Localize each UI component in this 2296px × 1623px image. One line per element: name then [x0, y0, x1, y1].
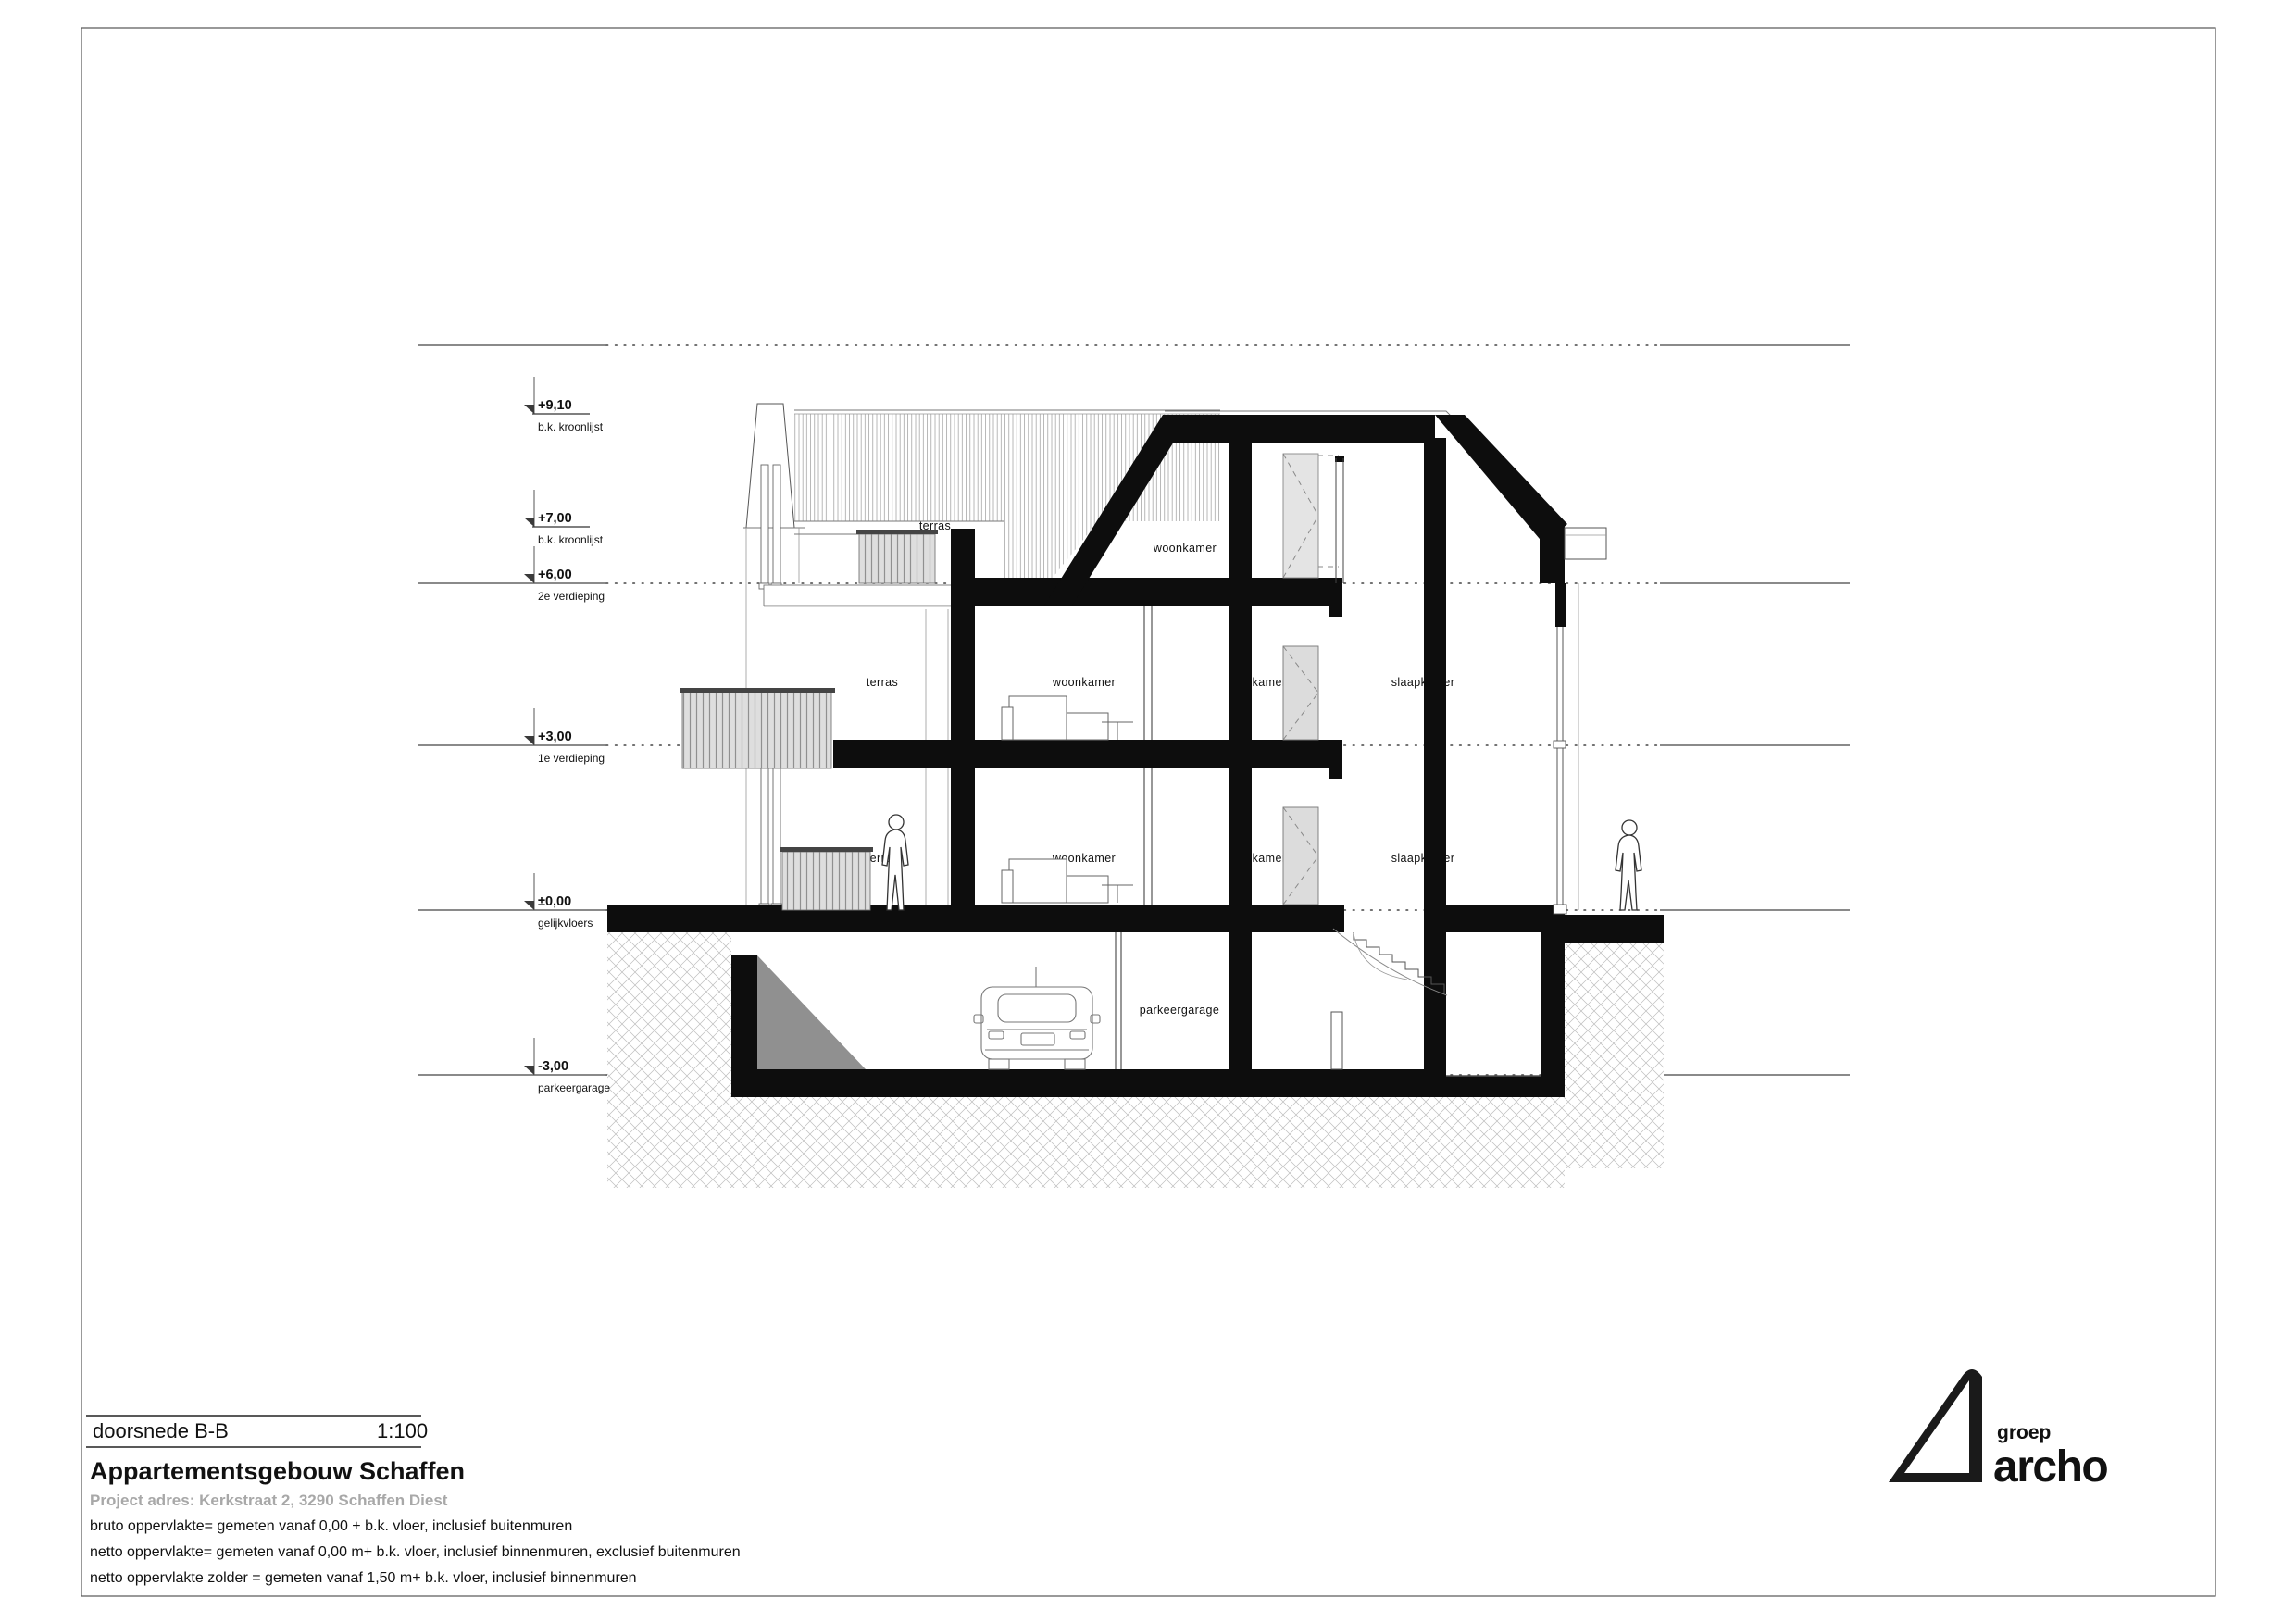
kamer-door-0: [1283, 807, 1318, 905]
roof-ridge-beam: [1163, 415, 1435, 443]
facade-transom: [1554, 741, 1566, 748]
neighbour-gable: [746, 404, 794, 528]
attic-window-glass: [1283, 454, 1318, 578]
project-address: Project adres: Kerkstraat 2, 3290 Schaff…: [90, 1492, 448, 1509]
note-netto-zolder: netto oppervlakte zolder = gemeten vanaf…: [90, 1570, 637, 1586]
drawing-sheet: terras woonkamer terras woonkamer kamer …: [0, 0, 2296, 1623]
marker-plus300: +3,00 1e verdieping: [524, 708, 605, 765]
roof-eave-pillar: [1540, 523, 1565, 583]
wall-interior-b: [1229, 438, 1252, 1069]
level-label: parkeergarage: [538, 1081, 610, 1094]
marker-plus600: +6,00 2e verdieping: [524, 546, 605, 603]
level-value: ±0,00: [538, 894, 571, 909]
floor-slab-plus6: [954, 578, 1342, 606]
level-value: -3,00: [538, 1059, 568, 1074]
balustrade-floor1-rail: [680, 688, 835, 693]
level-triangle-icon: [524, 736, 534, 745]
marker-plus910: +9,10 b.k. kroonlijst: [524, 377, 604, 433]
marker-minus300: -3,00 parkeergarage: [524, 1038, 610, 1094]
level-value: +3,00: [538, 730, 572, 744]
level-value: +9,10: [538, 398, 572, 413]
level-value: +6,00: [538, 568, 572, 582]
earth-below: [607, 1097, 1565, 1188]
drawing-name: doorsnede B-B: [93, 1419, 229, 1442]
level-label: gelijkvloers: [538, 917, 593, 930]
interior-partitions: [1116, 606, 1152, 1069]
elevation-markers: +9,10 b.k. kroonlijst +7,00 b.k. kroonli…: [524, 377, 610, 1094]
facade-sill: [1554, 905, 1566, 914]
floor-slab-plus3: [833, 740, 1342, 768]
logo-triangle-icon: [1889, 1369, 1982, 1482]
slab-edge-plus6: [1329, 606, 1342, 617]
level-triangle-icon: [524, 1066, 534, 1075]
groep-archo-logo: groep archo: [1889, 1369, 2107, 1492]
note-netto: netto oppervlakte= gemeten vanaf 0,00 m+…: [90, 1544, 741, 1560]
room-label-kamer-1: kamer: [1253, 676, 1287, 689]
room-label-terras-1: terras: [867, 676, 898, 689]
room-label-kamer-0: kamer: [1253, 852, 1287, 865]
level-label: b.k. kroonlijst: [538, 420, 604, 433]
kamer-door-1: [1283, 646, 1318, 740]
level-label: 1e verdieping: [538, 752, 605, 765]
room-label-woonkamer-1: woonkamer: [1052, 676, 1116, 689]
level-label: 2e verdieping: [538, 590, 605, 603]
garage-ramp-wedge: [757, 955, 866, 1069]
balustrade-attic: [859, 534, 935, 583]
wall-basement-right: [1541, 915, 1565, 1097]
balustrade-attic-rail: [856, 530, 938, 534]
floor-slab-minus3: [757, 1069, 1446, 1097]
title-block: doorsnede B-B 1:100 Appartementsgebouw S…: [86, 1416, 741, 1586]
logo-group-text: groep: [1997, 1422, 2051, 1443]
level-triangle-icon: [524, 574, 534, 583]
level-triangle-icon: [524, 405, 534, 414]
glazed-doors: [1283, 454, 1318, 905]
section-drawing: terras woonkamer terras woonkamer kamer …: [0, 0, 2296, 1623]
note-bruto: bruto oppervlakte= gemeten vanaf 0,00 + …: [90, 1518, 572, 1534]
level-value: +7,00: [538, 511, 572, 526]
balustrade-ground: [782, 852, 870, 910]
slab-edge-plus3: [1329, 768, 1342, 779]
garage-door: [1331, 933, 1407, 1069]
sheet-border: [81, 28, 2215, 1596]
wall-basement-left: [731, 955, 757, 1097]
furniture-ground: [1002, 859, 1133, 903]
balustrade-ground-rail: [780, 847, 873, 852]
level-triangle-icon: [524, 518, 534, 527]
facade-head-right: [1555, 583, 1566, 627]
furniture-floor1: [1002, 696, 1133, 740]
earth-right: [1565, 943, 1664, 1168]
right-glazed-facade: [1554, 627, 1566, 914]
marker-plus700: +7,00 b.k. kroonlijst: [524, 490, 604, 546]
car-icon: [974, 967, 1100, 1069]
logo-name-text: archo: [1993, 1442, 2107, 1492]
balustrade-floor1: [682, 693, 831, 768]
wall-interior-c: [1424, 438, 1446, 1076]
room-label-parkeergarage: parkeergarage: [1140, 1004, 1220, 1017]
level-triangle-icon: [524, 901, 534, 910]
exterior-apron-slab: [1565, 915, 1664, 943]
gutter-box-right: [1565, 528, 1606, 559]
project-title: Appartementsgebouw Schaffen: [90, 1457, 465, 1485]
drawing-scale: 1:100: [377, 1419, 428, 1442]
room-label-woonkamer-attic: woonkamer: [1153, 542, 1217, 555]
wall-left-facade: [951, 529, 975, 905]
level-label: b.k. kroonlijst: [538, 533, 604, 546]
person-figure-garden-icon: [1616, 820, 1641, 910]
person-figure-terrace-icon: [882, 815, 908, 910]
marker-zero: ±0,00 gelijkvloers: [524, 873, 593, 930]
